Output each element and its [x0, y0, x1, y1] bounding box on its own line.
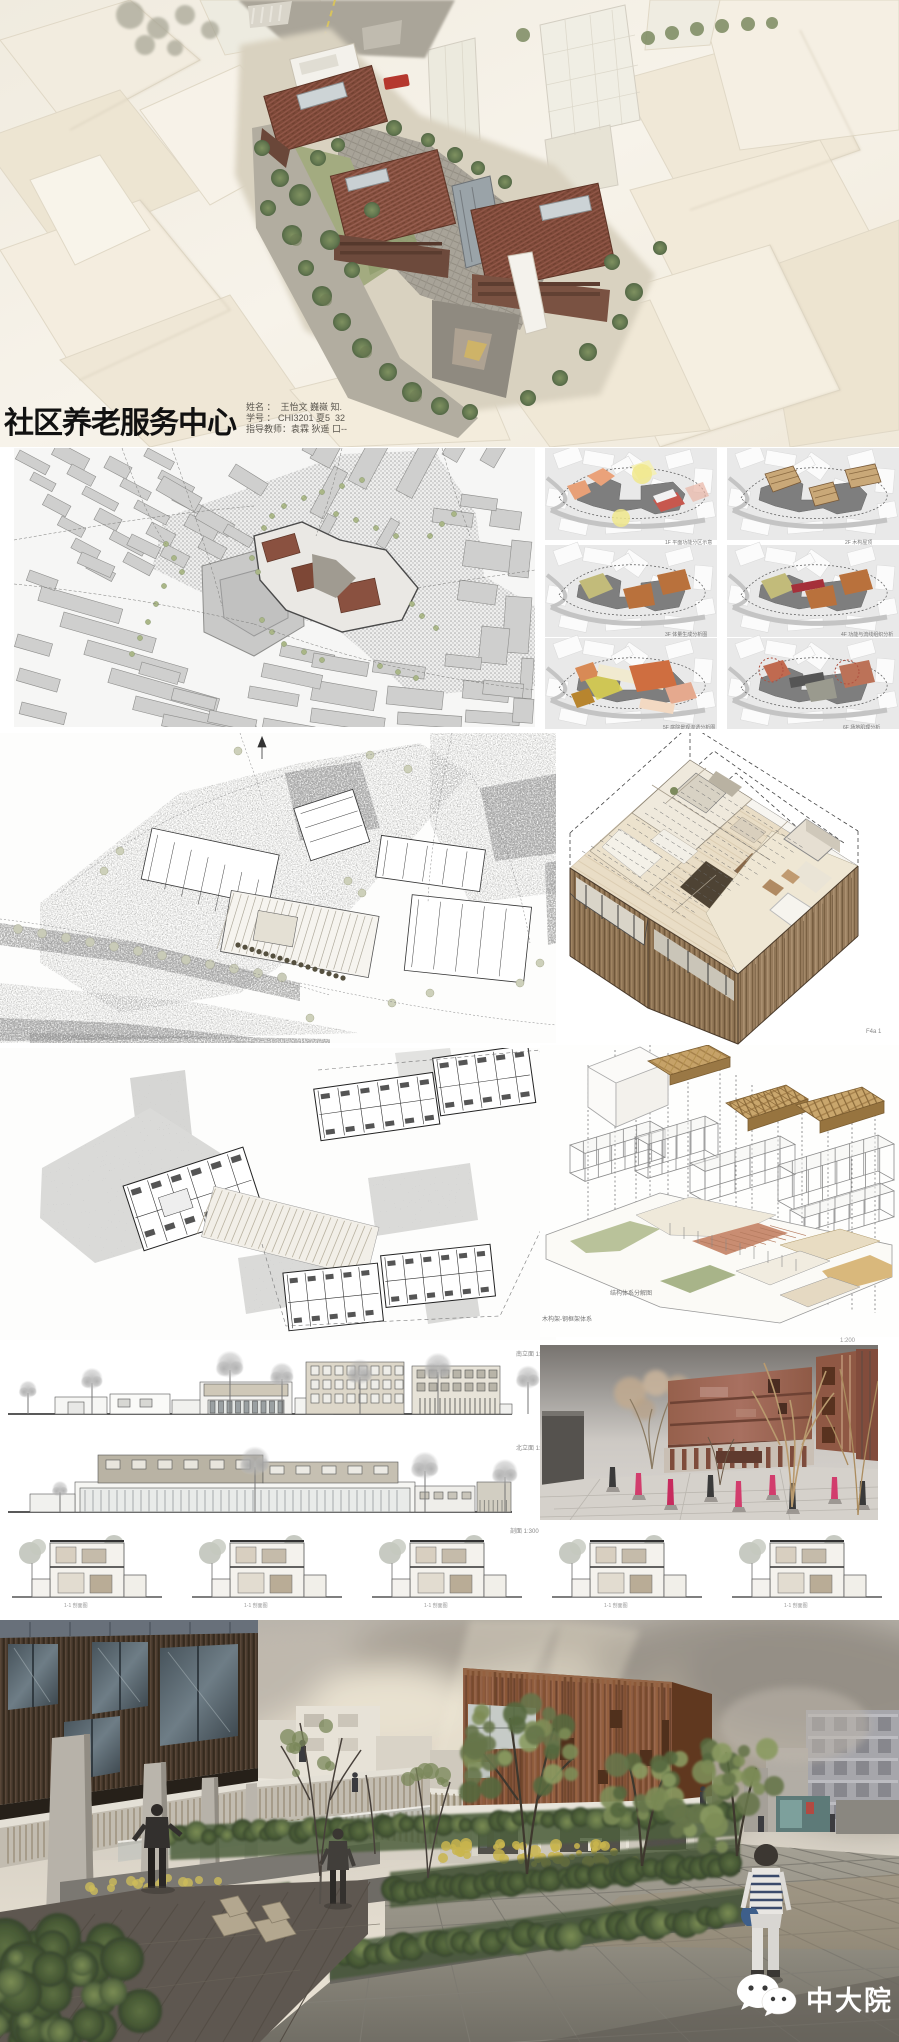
- svg-text:剖面 1:300: 剖面 1:300: [510, 1527, 539, 1535]
- svg-text:4F 功能与流线组织分析: 4F 功能与流线组织分析: [841, 631, 893, 638]
- svg-text:1F 平面功能分区示意: 1F 平面功能分区示意: [665, 539, 712, 546]
- svg-text:北立面 1:400: 北立面 1:400: [516, 1444, 540, 1452]
- svg-text:南立面 1:400: 南立面 1:400: [516, 1350, 540, 1358]
- svg-text:1-1 剖面图: 1-1 剖面图: [64, 1602, 88, 1609]
- svg-text:1-1 剖面图: 1-1 剖面图: [604, 1602, 628, 1609]
- svg-text:木构架-钢框架体系: 木构架-钢框架体系: [542, 1315, 592, 1323]
- svg-text:中大院: 中大院: [806, 1985, 893, 2016]
- svg-text:1-1 剖面图: 1-1 剖面图: [244, 1602, 268, 1609]
- svg-text:结构体系分解图: 结构体系分解图: [610, 1289, 652, 1297]
- svg-text:6F 场地肌理分析: 6F 场地肌理分析: [843, 724, 880, 729]
- svg-text:F4a 1: F4a 1: [866, 1029, 882, 1035]
- svg-text:1-1 剖面图: 1-1 剖面图: [784, 1602, 808, 1609]
- svg-text:5F 庭院景观渗透分析图: 5F 庭院景观渗透分析图: [663, 724, 715, 729]
- svg-text:2F 木构屋顶: 2F 木构屋顶: [845, 539, 872, 546]
- svg-text:3F 体量生成分析图: 3F 体量生成分析图: [665, 631, 707, 638]
- svg-text:1-1 剖面图: 1-1 剖面图: [424, 1602, 448, 1609]
